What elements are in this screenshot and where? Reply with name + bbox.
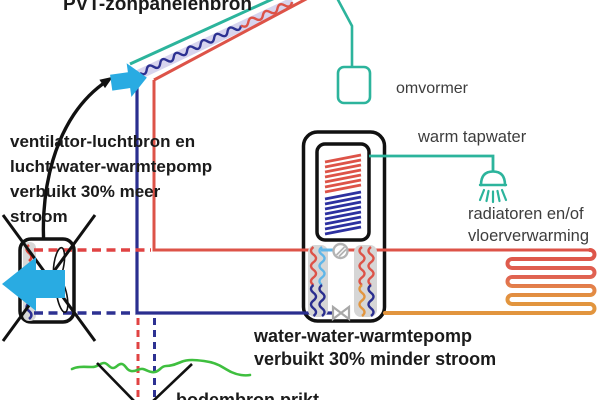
inverter bbox=[337, 0, 370, 103]
tap-water-pipe bbox=[369, 156, 493, 171]
ground-surface-line bbox=[72, 360, 250, 375]
source-heat-exchanger bbox=[308, 245, 328, 317]
air-heat-pump-crossed-out bbox=[2, 215, 95, 341]
diagram-title: PVT-zonpanelenbron bbox=[63, 0, 252, 17]
heating-system-diagram: PVT-zonpanelenbron omvormer warm tapwate… bbox=[0, 0, 600, 400]
inverter-box bbox=[338, 67, 370, 103]
circulation-pump-icon bbox=[334, 244, 348, 258]
heating-emitters-label: radiatoren en/of vloerverwarming bbox=[468, 203, 589, 247]
air-source-note: ventilator-luchtbron en lucht-water-warm… bbox=[10, 129, 212, 229]
solar-heat-arrow bbox=[109, 61, 149, 100]
shower-icon bbox=[480, 172, 506, 203]
ground-source-note: bodembron prikt bbox=[176, 389, 319, 400]
radiator-floor-heating-coil bbox=[385, 250, 595, 313]
inverter-cable bbox=[337, 0, 352, 67]
sink-heat-exchanger bbox=[354, 245, 377, 317]
inverter-label: omvormer bbox=[396, 78, 468, 99]
tap-water-label: warm tapwater bbox=[418, 127, 526, 149]
water-water-note: water-water-warmtepomp verbuikt 30% mind… bbox=[254, 325, 496, 371]
borehole-left-line bbox=[97, 363, 136, 400]
